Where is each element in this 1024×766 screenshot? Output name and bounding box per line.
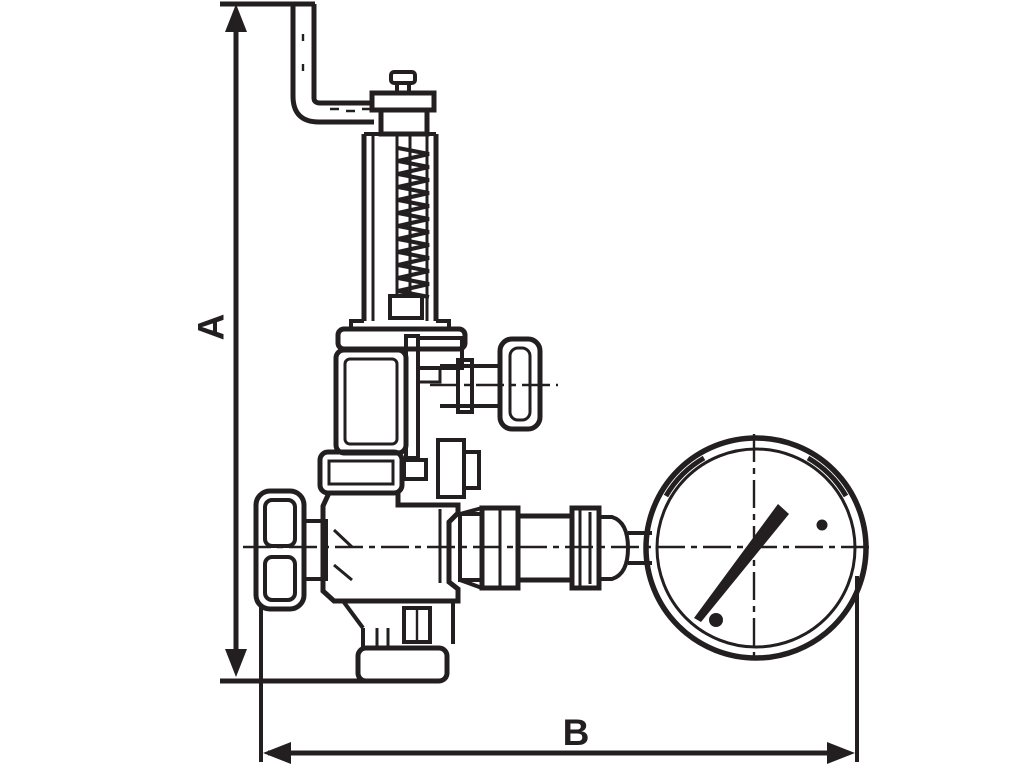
gauge-dial-dot-high [817, 520, 828, 531]
spindle-cap [372, 72, 434, 134]
safety-valve-dimension-drawing: A B [0, 0, 1024, 766]
gauge-dial-dot-low [709, 613, 723, 627]
gauge-needle [694, 504, 789, 622]
spring-coil [398, 148, 429, 297]
pressure-gauge [646, 434, 866, 663]
technical-drawing-page: A B [0, 0, 1024, 766]
arrow-up-icon [225, 4, 247, 32]
arrow-down-icon [225, 649, 247, 677]
handwheel [256, 491, 326, 609]
spring-bonnet [338, 134, 465, 349]
inlet-flange [343, 601, 453, 681]
dimension-b: B [261, 576, 857, 764]
arrow-left-icon [263, 742, 291, 764]
mid-flange [320, 440, 479, 497]
lifting-lever [292, 4, 374, 122]
dim-b-label: B [563, 712, 590, 753]
arrow-right-icon [827, 742, 855, 764]
dim-a-label: A [191, 314, 232, 341]
